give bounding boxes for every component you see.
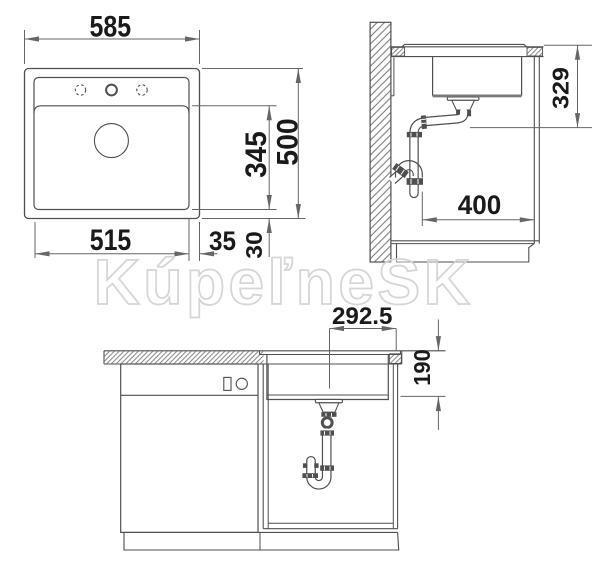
svg-text:329: 329 [548,67,574,109]
svg-text:345: 345 [240,131,273,178]
svg-text:500: 500 [272,118,305,166]
svg-text:400: 400 [458,190,502,220]
svg-text:190: 190 [409,349,435,386]
svg-text:KúpeľneSK: KúpeľneSK [94,246,474,318]
svg-text:585: 585 [90,11,132,44]
